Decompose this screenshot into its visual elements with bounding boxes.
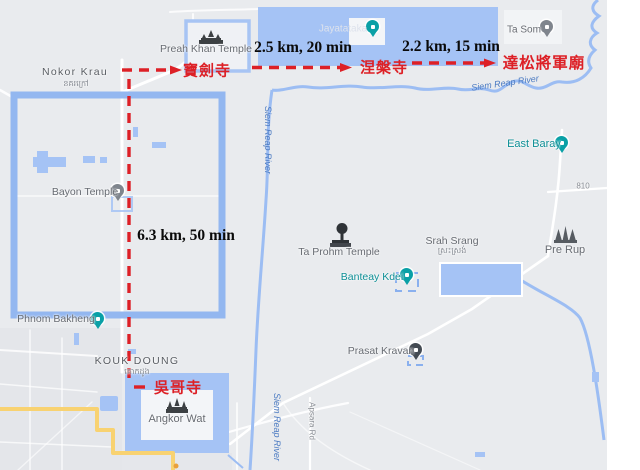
pre-rup-temple-icon [553, 226, 578, 243]
distance-annotation-preahkhan-angkorwat: 6.3 km, 50 min [137, 227, 235, 245]
phnom-bakheng-label[interactable]: Phnom Bakheng [17, 313, 95, 325]
siem-reap-river-label-lower: Siem Reap River [272, 393, 282, 461]
ta-prohm-temple-label[interactable]: Ta Prohm Temple [298, 246, 380, 258]
distance-annotation-preahkhan-neakpean: 2.5 km, 20 min [254, 39, 352, 57]
angkor-wat-label[interactable]: Angkor Wat [148, 413, 205, 425]
nokor-krau-label[interactable]: Nokor Krau [42, 66, 108, 78]
apsara-rd-label: Apsara Rd [308, 402, 317, 440]
preah-khan-temple-icon [199, 30, 223, 44]
srah-srang-khmer-label: ស្រះស្រង់ [438, 245, 467, 257]
ta-som-pin[interactable] [540, 20, 553, 33]
kouk-doung-khmer-label: គោកដូង [124, 366, 149, 378]
stop-label-neak-pean-chinese: 涅槃寺 [360, 57, 408, 78]
route-810-shield-label: 810 [576, 182, 589, 191]
ta-prohm-temple-icon [329, 223, 351, 248]
east-baray-label[interactable]: East Baray [507, 138, 561, 150]
preah-khan-temple-label[interactable]: Preah Khan Temple [160, 43, 252, 55]
distance-annotation-neakpean-tasom: 2.2 km, 15 min [402, 38, 500, 56]
nokor-krau-khmer-label: នគរក្រៅ [63, 78, 88, 90]
stop-label-preah-khan-chinese: 寶劍寺 [183, 60, 231, 81]
route-dashed-line [122, 59, 496, 388]
jayatataka-pin[interactable] [366, 20, 379, 33]
jayatataka-label[interactable]: Jayatataka [319, 24, 367, 35]
banteay-kdei-label[interactable]: Banteay Kdei [341, 271, 403, 283]
page-margin [607, 0, 640, 470]
ta-som-label[interactable]: Ta Som [507, 25, 541, 36]
bayon-temple-label[interactable]: Bayon Temple [52, 186, 118, 198]
map-canvas[interactable]: Preah Khan Temple Nokor Krau នគរក្រៅ Bay… [0, 0, 607, 470]
prasat-kravan-label[interactable]: Prasat Kravan [348, 345, 415, 357]
stop-label-angkor-wat-chinese: 吳哥寺 [154, 377, 202, 398]
siem-reap-river-label-upper: Siem Reap River [263, 106, 273, 174]
screenshot-root: Preah Khan Temple Nokor Krau នគរក្រៅ Bay… [0, 0, 640, 470]
angkor-wat-temple-icon [166, 398, 188, 413]
stop-label-ta-som-chinese: 達松將軍廟 [503, 51, 586, 73]
pre-rup-label[interactable]: Pre Rup [545, 244, 585, 256]
